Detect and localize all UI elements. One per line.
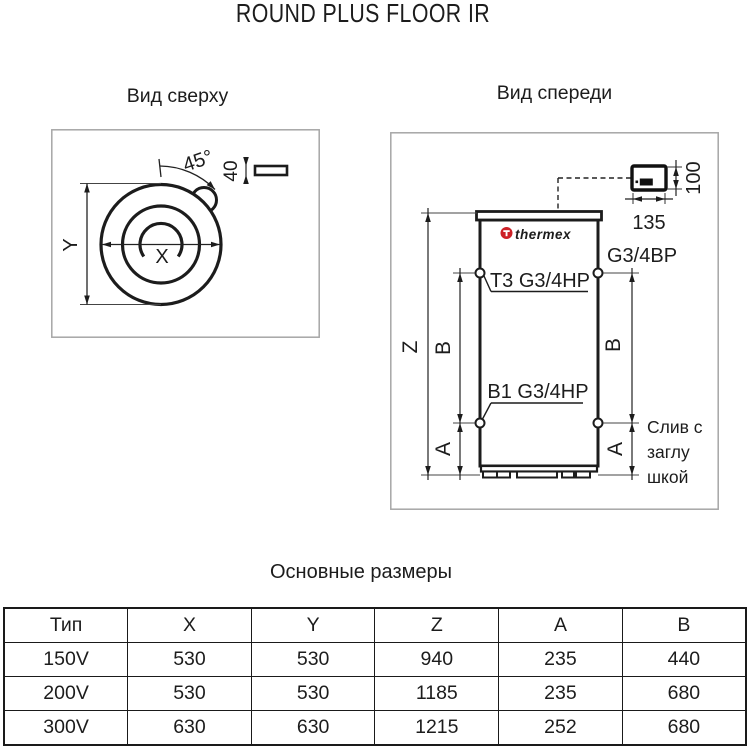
front-view-drawing: 100 135 thermex xyxy=(390,132,719,510)
port-notch-t3 xyxy=(476,269,485,278)
col-header-y: Y xyxy=(251,608,375,643)
panel-height-label: 100 xyxy=(683,161,705,194)
table-cell: 530 xyxy=(128,643,252,677)
tank-foot xyxy=(497,472,510,478)
drain-caption: Слив с заглу шкой xyxy=(647,417,703,487)
port-notch-right xyxy=(594,269,603,278)
table-cell: 440 xyxy=(622,643,746,677)
table-row: 300V 630 630 1215 252 680 xyxy=(4,711,746,746)
table-cell: 1185 xyxy=(375,677,499,711)
table-cell: 300V xyxy=(4,711,128,746)
table-cell: 200V xyxy=(4,677,128,711)
tank-feet xyxy=(483,472,590,478)
table-header-row: Тип X Y Z A B xyxy=(4,608,746,643)
col-header-x: X xyxy=(128,608,252,643)
dims-table: Тип X Y Z A B 150V 530 530 940 235 440 2… xyxy=(3,607,747,746)
top-port-label: Т3 G3/4НР xyxy=(490,270,590,292)
dim-z-label: Z xyxy=(399,340,422,353)
top-view-heading: Вид сверху xyxy=(51,85,304,108)
angle-label: 45° xyxy=(180,146,216,177)
dim-panel-height xyxy=(667,167,682,189)
panel-width-label: 135 xyxy=(632,212,665,234)
table-cell: 530 xyxy=(128,677,252,711)
nozzle-plate-side xyxy=(255,166,287,175)
dim-a-right-label: A xyxy=(604,442,627,456)
table-cell: 530 xyxy=(251,677,375,711)
dim-x-label: X xyxy=(155,246,168,268)
dims-table-wrap: Тип X Y Z A B 150V 530 530 940 235 440 2… xyxy=(3,607,747,746)
table-cell: 630 xyxy=(128,711,252,746)
table-cell: 530 xyxy=(251,643,375,677)
table-cell: 940 xyxy=(375,643,499,677)
tank-foot xyxy=(562,472,574,478)
col-header-a: A xyxy=(499,608,623,643)
brand-logo-text: thermex xyxy=(515,227,571,242)
col-header-z: Z xyxy=(375,608,499,643)
top-view-drawing: X Y 45° 40 xyxy=(51,129,320,338)
tank-body xyxy=(480,220,598,466)
drain-caption-line1: Слив с xyxy=(647,417,703,437)
tank-foot xyxy=(576,472,590,478)
dim-y-label: Y xyxy=(60,238,82,251)
table-cell: 252 xyxy=(499,711,623,746)
plate-width-label: 40 xyxy=(221,160,242,181)
port-notch-drain xyxy=(594,419,603,428)
dim-b-right-label: B xyxy=(602,338,625,352)
table-cell: 680 xyxy=(622,711,746,746)
port-notch-b1 xyxy=(476,419,485,428)
bottom-port-label: В1 G3/4НР xyxy=(487,381,588,403)
dim-a-left-label: A xyxy=(432,442,455,456)
page-title: ROUND PLUS FLOOR IR xyxy=(0,0,725,29)
col-header-type: Тип xyxy=(4,608,128,643)
table-cell: 680 xyxy=(622,677,746,711)
table-row: 200V 530 530 1185 235 680 xyxy=(4,677,746,711)
table-cell: 630 xyxy=(251,711,375,746)
dim-b-left-label: B xyxy=(432,341,455,355)
drain-caption-line3: шкой xyxy=(647,467,688,487)
table-row: 150V 530 530 940 235 440 xyxy=(4,643,746,677)
page-title-text: ROUND PLUS FLOOR IR xyxy=(235,0,489,29)
right-port-label: G3/4ВР xyxy=(607,245,677,267)
table-heading: Основные размеры xyxy=(0,561,722,584)
tank-foot xyxy=(517,472,557,478)
table-cell: 1215 xyxy=(375,711,499,746)
table-cell: 235 xyxy=(499,677,623,711)
table-cell: 150V xyxy=(4,643,128,677)
control-panel xyxy=(632,166,666,190)
tank-cap xyxy=(477,212,602,221)
tank-foot xyxy=(483,472,497,478)
dashed-connection-line xyxy=(558,178,632,212)
table-cell: 235 xyxy=(499,643,623,677)
drain-caption-line2: заглу xyxy=(647,442,690,462)
front-view-heading: Вид спереди xyxy=(390,82,719,105)
col-header-b: B xyxy=(622,608,746,643)
